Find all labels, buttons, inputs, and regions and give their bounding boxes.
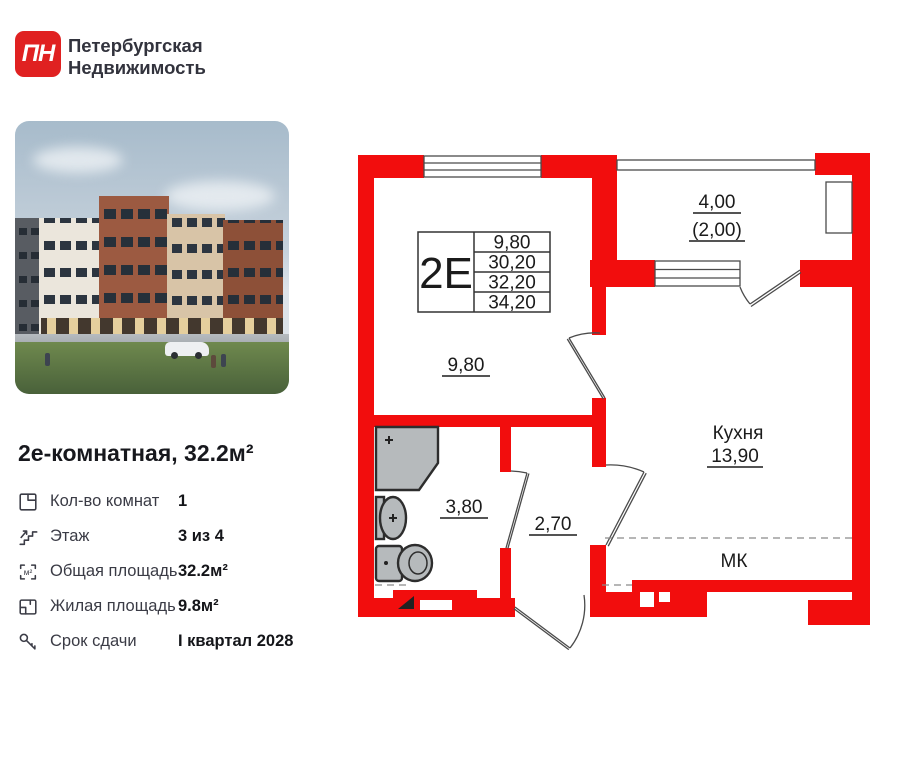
balcony-cabinet [826, 182, 852, 233]
page-title: 2е-комнатная, 32.2м² [18, 440, 253, 467]
total-area-icon: м² [16, 560, 40, 584]
balcony-rail [617, 160, 815, 170]
brand-logo[interactable]: ПН [15, 31, 61, 77]
detail-row-living-area: Жилая площадь 9.8м² [16, 589, 306, 624]
detail-row-total-area: м² Общая площадь 32.2м² [16, 554, 306, 589]
unit-code: 2Е [419, 249, 473, 298]
listing-page: ПН Петербургская Недвижимость 2е-комнатн… [0, 0, 921, 768]
room-window [424, 156, 541, 177]
room-area-label: 9,80 [448, 355, 485, 376]
building-photo[interactable] [15, 121, 289, 394]
floor-icon [16, 525, 40, 549]
svg-text:м²: м² [24, 567, 33, 576]
detail-value: 32.2м² [178, 562, 228, 581]
unit-table: 2Е 9,80 30,20 32,20 34,20 [418, 232, 550, 314]
pedestrian [45, 353, 50, 366]
building-brick-block [99, 196, 169, 336]
lawn [15, 342, 289, 394]
brand-name: Петербургская Недвижимость [68, 35, 206, 78]
pedestrian [211, 355, 216, 368]
balcony-area-label: 4,00 [699, 192, 736, 213]
fixtures [376, 427, 438, 581]
detail-row-deadline: Срок сдачи I квартал 2028 [16, 624, 306, 659]
detail-value: 1 [178, 492, 187, 511]
apartment-details: Кол-во комнат 1 Этаж 3 из 4 м² Общая пло… [16, 484, 306, 659]
cloud [33, 147, 123, 173]
balcony-door [740, 270, 801, 307]
bathroom-door [506, 471, 529, 549]
rooms-icon [16, 490, 40, 514]
brand-line1: Петербургская [68, 35, 206, 57]
detail-label: Жилая площадь [50, 597, 176, 616]
kitchen-name-label: Кухня [713, 423, 764, 444]
table-row-1: 30,20 [488, 253, 536, 274]
balcony-reduced-label: (2,00) [692, 220, 742, 241]
walls [358, 153, 870, 625]
detail-label: Общая площадь [50, 562, 177, 581]
room-door [567, 333, 605, 399]
table-row-0: 9,80 [494, 233, 531, 254]
hallway-area-label: 2,70 [535, 514, 572, 535]
detail-row-floor: Этаж 3 из 4 [16, 519, 306, 554]
living-area-icon [16, 595, 40, 619]
detail-value: 9.8м² [178, 597, 219, 616]
dashed-lines [375, 538, 852, 585]
mk-label: МК [721, 551, 748, 572]
detail-label: Кол-во комнат [50, 492, 159, 511]
white-car [165, 342, 209, 356]
detail-label: Этаж [50, 527, 89, 546]
shower-tray [376, 427, 438, 490]
pedestrian [221, 354, 226, 367]
kitchen-area-label: 13,90 [711, 446, 759, 467]
detail-value: I квартал 2028 [178, 632, 293, 651]
table-row-2: 32,20 [488, 273, 536, 294]
bathroom-area-label: 3,80 [446, 497, 483, 518]
brand-line2: Недвижимость [68, 57, 206, 79]
building-far-block [15, 218, 41, 336]
deadline-icon [16, 630, 40, 654]
entry-door [514, 595, 585, 650]
kitchen-window [655, 261, 740, 286]
detail-value: 3 из 4 [178, 527, 224, 546]
floor-plan[interactable]: 2Е 9,80 30,20 32,20 34,20 4,00 (2,00) 9,… [356, 140, 921, 700]
table-row-3: 34,20 [488, 293, 536, 314]
detail-row-rooms: Кол-во комнат 1 [16, 484, 306, 519]
brand-logo-text: ПН [22, 40, 55, 68]
detail-label: Срок сдачи [50, 632, 137, 651]
hall-kitchen-door [606, 465, 646, 546]
cloud [165, 181, 275, 211]
